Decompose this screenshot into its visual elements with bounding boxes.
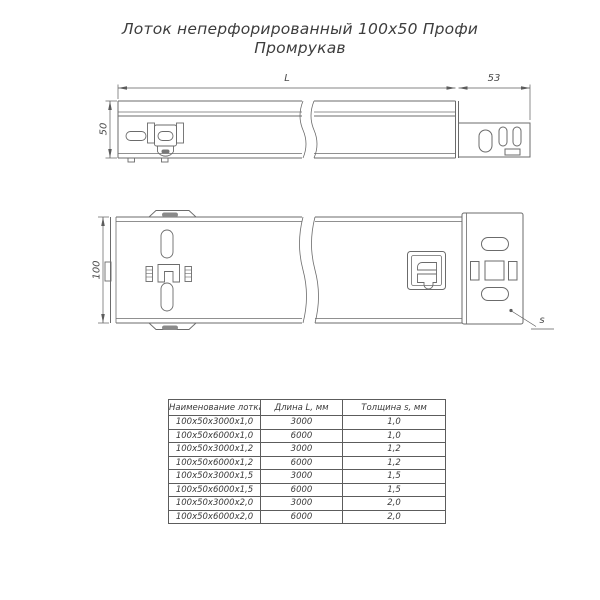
table-cell: 100х50х6000х2,0 — [169, 510, 261, 524]
col-header-name: Наименование лотка — [169, 400, 261, 416]
break-lines-plan — [300, 217, 319, 323]
table-cell: 6000 — [261, 510, 343, 524]
side-oval-slot — [126, 132, 146, 141]
table-cell: 3000 — [261, 497, 343, 511]
table-cell: 6000 — [261, 483, 343, 497]
table-cell: 6000 — [261, 456, 343, 470]
table-row: 100х50х6000х2,060002,0 — [169, 510, 446, 524]
end-oval-slot — [479, 130, 492, 152]
end-small-hole — [505, 149, 520, 155]
plate-square-hole — [485, 261, 504, 280]
latch-hole — [162, 150, 170, 154]
side-view-latch — [126, 123, 184, 156]
spec-table-header-row: Наименование лотка Длина L, мм Толщина s… — [169, 400, 446, 416]
plate-side-slot — [509, 262, 518, 281]
table-cell: 100х50х6000х1,2 — [169, 456, 261, 470]
table-cell: 100х50х3000х1,2 — [169, 443, 261, 457]
table-row: 100х50х3000х1,530001,5 — [169, 470, 446, 484]
table-cell: 2,0 — [343, 510, 446, 524]
plate-oval-slot — [482, 288, 509, 301]
col-header-thickness: Толщина s, мм — [343, 400, 446, 416]
plan-bracket-cutout — [158, 265, 180, 283]
table-cell: 100х50х3000х1,5 — [169, 470, 261, 484]
table-cell: 6000 — [261, 429, 343, 443]
table-cell: 100х50х6000х1,5 — [169, 483, 261, 497]
side-view-end-connector — [459, 123, 531, 157]
plate-side-slot — [471, 262, 480, 281]
dim-label-side-height: 50 — [99, 123, 110, 136]
table-row: 100х50х6000х1,060001,0 — [169, 429, 446, 443]
break-lines-side — [300, 101, 317, 158]
side-view-dimensions — [106, 85, 531, 159]
table-cell: 1,5 — [343, 483, 446, 497]
side-view — [106, 85, 531, 163]
dim-label-length: L — [284, 73, 290, 84]
end-comb-slot — [513, 127, 521, 146]
plan-oval-slot — [161, 230, 173, 258]
col-header-length: Длина L, мм — [261, 400, 343, 416]
plan-hatched-slot — [185, 267, 192, 282]
table-cell: 2,0 — [343, 497, 446, 511]
promrukav-logo-icon — [408, 252, 446, 290]
plan-view — [98, 211, 554, 331]
table-cell: 1,0 — [343, 416, 446, 430]
table-cell: 3000 — [261, 470, 343, 484]
table-cell: 3000 — [261, 443, 343, 457]
table-row: 100х50х3000х2,030002,0 — [169, 497, 446, 511]
plan-view-dimensions — [98, 217, 554, 329]
plate-oval-slot — [482, 238, 509, 251]
spec-table-body: 100х50х3000х1,030001,0100х50х6000х1,0600… — [169, 416, 446, 524]
table-row: 100х50х6000х1,560001,5 — [169, 483, 446, 497]
plan-hatched-slot — [146, 267, 153, 282]
table-cell: 1,2 — [343, 443, 446, 457]
table-cell: 100х50х3000х1,0 — [169, 416, 261, 430]
table-row: 100х50х3000х1,030001,0 — [169, 416, 446, 430]
plan-oval-slot — [161, 283, 173, 311]
table-cell: 1,2 — [343, 456, 446, 470]
table-cell: 1,0 — [343, 429, 446, 443]
table-cell: 100х50х6000х1,0 — [169, 429, 261, 443]
table-row: 100х50х3000х1,230001,2 — [169, 443, 446, 457]
dim-label-end-width: 53 — [488, 73, 501, 84]
drawing-sheet: Лоток неперфорированный 100х50 Профи Про… — [0, 0, 600, 600]
side-view-feet — [128, 158, 168, 162]
end-comb-slot — [499, 127, 507, 146]
table-cell: 3000 — [261, 416, 343, 430]
spec-table: Наименование лотка Длина L, мм Толщина s… — [168, 399, 446, 524]
table-cell: 100х50х3000х2,0 — [169, 497, 261, 511]
plan-left-details — [146, 230, 192, 311]
plan-end-plate — [462, 213, 523, 324]
table-row: 100х50х6000х1,260001,2 — [169, 456, 446, 470]
table-cell: 1,5 — [343, 470, 446, 484]
dim-label-plan-width: 100 — [92, 260, 103, 279]
dim-label-thickness: s — [539, 315, 544, 326]
